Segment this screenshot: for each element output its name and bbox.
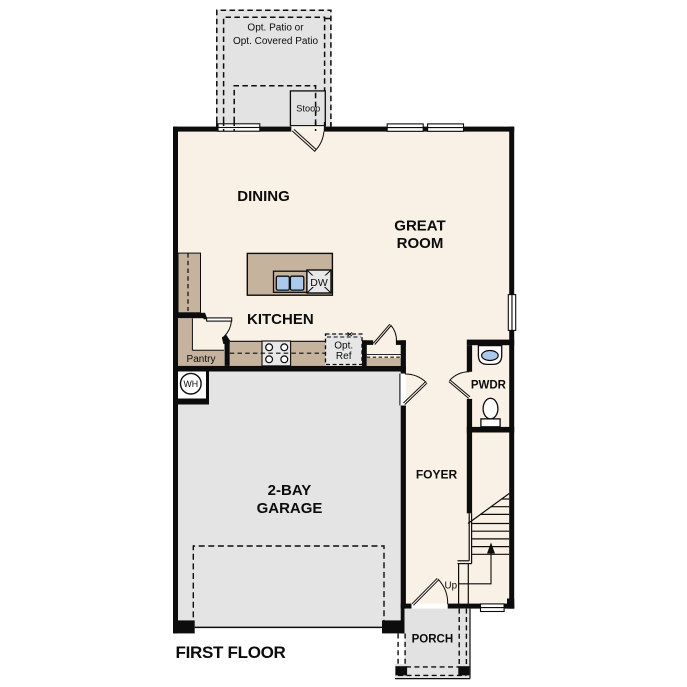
svg-text:ROOM: ROOM <box>397 235 444 252</box>
svg-text:DW: DW <box>310 277 328 289</box>
svg-text:KITCHEN: KITCHEN <box>247 311 314 328</box>
svg-text:Opt. Patio or: Opt. Patio or <box>247 23 304 34</box>
svg-text:Opt. Covered Patio: Opt. Covered Patio <box>233 36 318 47</box>
svg-text:Stoop: Stoop <box>296 103 320 113</box>
svg-text:2-BAY: 2-BAY <box>268 482 312 499</box>
svg-text:PWDR: PWDR <box>471 380 507 392</box>
svg-text:GREAT: GREAT <box>394 217 445 234</box>
svg-text:GARAGE: GARAGE <box>257 500 323 517</box>
svg-text:PORCH: PORCH <box>412 634 454 646</box>
svg-text:WH: WH <box>183 379 198 389</box>
svg-text:FIRST FLOOR: FIRST FLOOR <box>176 643 286 662</box>
svg-text:Ref: Ref <box>336 351 352 362</box>
svg-text:DINING: DINING <box>237 188 289 205</box>
svg-text:FOYER: FOYER <box>416 468 458 482</box>
svg-text:Pantry: Pantry <box>187 354 216 365</box>
svg-text:Up: Up <box>445 581 458 592</box>
